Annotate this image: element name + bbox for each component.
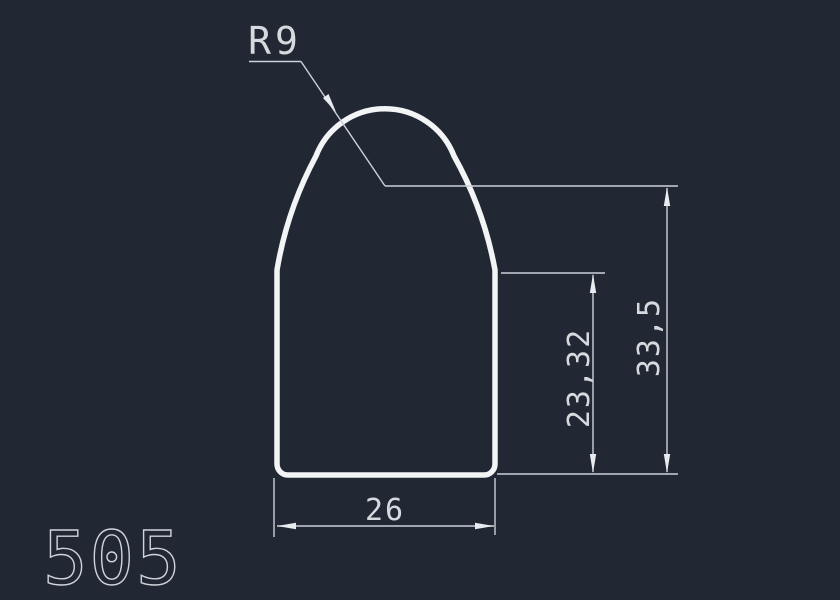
- total-height-arrow-top[interactable]: [664, 187, 670, 206]
- shoulder-height-arrow-bottom[interactable]: [590, 454, 596, 473]
- shoulder-height-dimension-label[interactable]: 23,32: [562, 328, 597, 428]
- profile-outline[interactable]: [277, 109, 495, 475]
- radius-dimension-label[interactable]: R9: [248, 19, 302, 63]
- drawing-canvas: R9 23,32 33,5 26 505: [0, 0, 840, 600]
- width-arrow-right[interactable]: [475, 523, 494, 529]
- radius-leader-arrow[interactable]: [323, 94, 336, 112]
- cad-viewport: R9 23,32 33,5 26 505: [0, 0, 840, 600]
- width-dimension-label[interactable]: 26: [365, 493, 405, 528]
- shoulder-height-arrow-top[interactable]: [590, 274, 596, 293]
- radius-leader-line[interactable]: [301, 62, 385, 187]
- total-height-dimension-label[interactable]: 33,5: [632, 297, 667, 377]
- width-arrow-left[interactable]: [277, 523, 296, 529]
- drawing-number-label: 505: [43, 516, 183, 600]
- total-height-arrow-bottom[interactable]: [664, 454, 670, 473]
